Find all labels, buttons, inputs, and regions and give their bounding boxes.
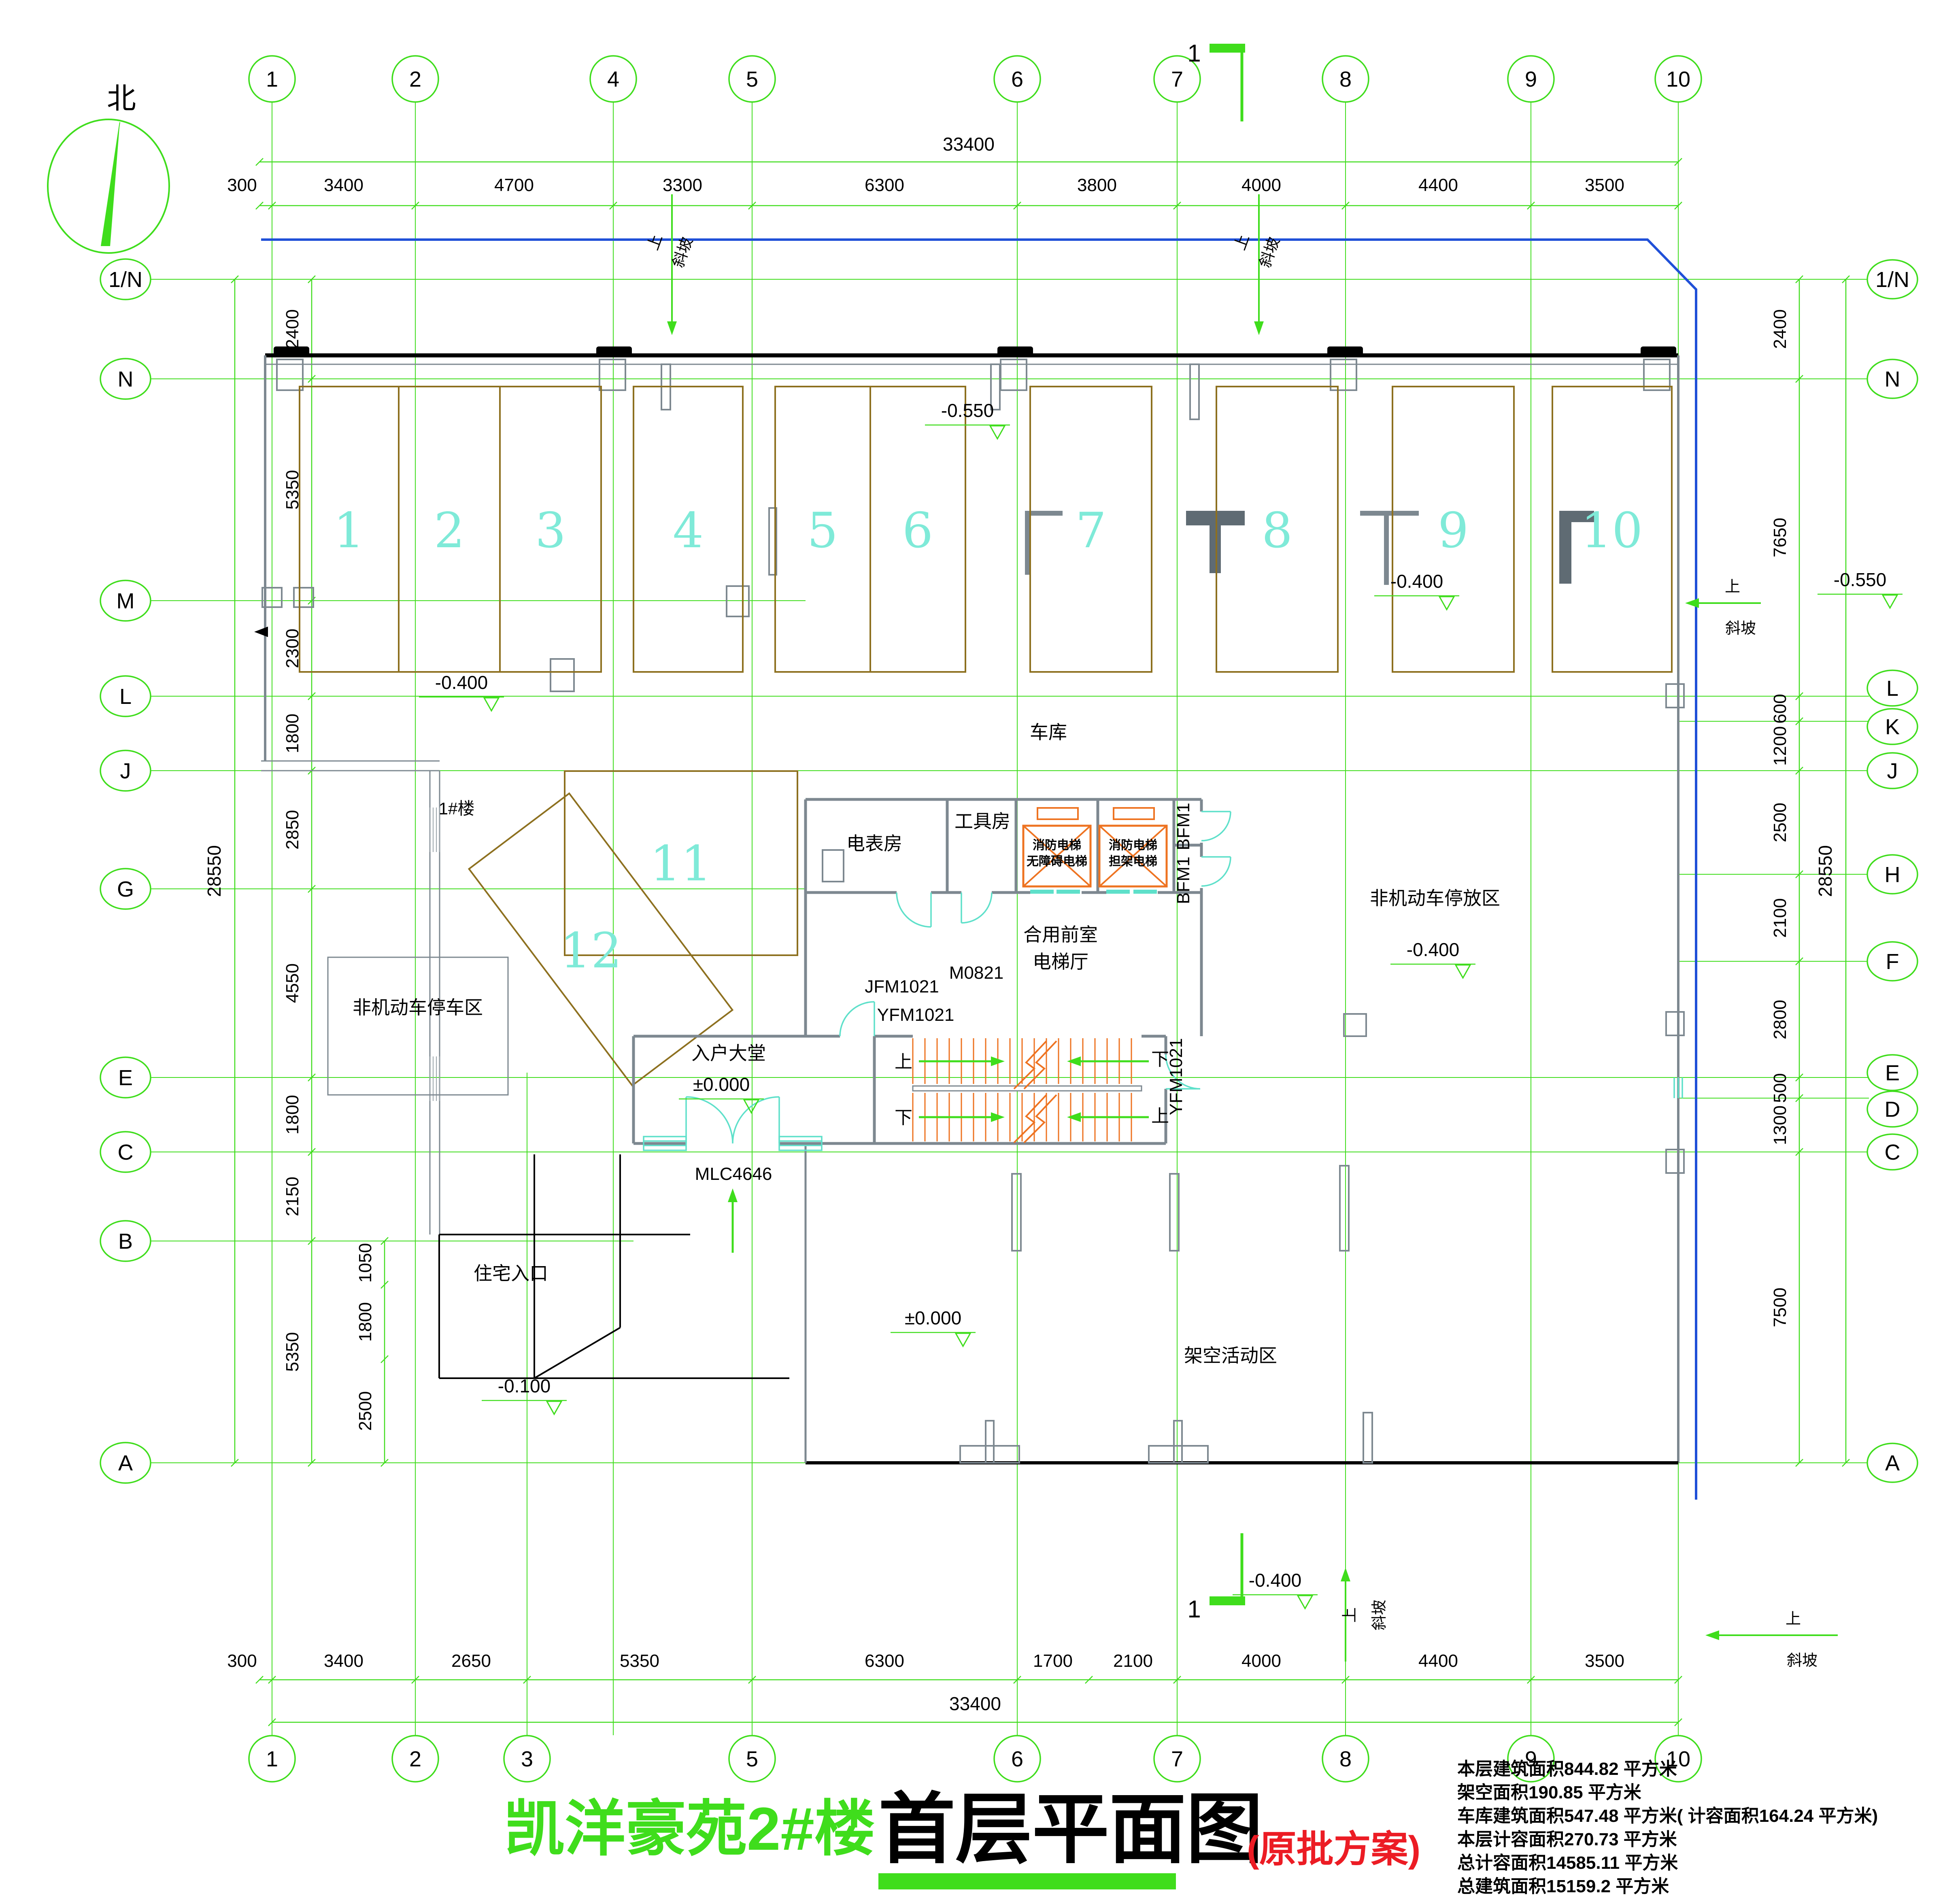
dim-right-2: 600 (1770, 694, 1790, 723)
dim-left-7: 2150 (283, 1177, 302, 1216)
stall-9: 9 (1438, 503, 1469, 559)
elevated-columns (960, 1166, 1372, 1463)
dim-right-4: 2500 (1770, 803, 1790, 842)
dim-left-5: 4550 (283, 963, 302, 1003)
dim-bot-7: 4000 (1241, 1651, 1281, 1671)
section-marks: 1 1 (1187, 40, 1245, 1623)
elev-elevated-zero: ±0.000 (891, 1307, 976, 1346)
stat-line-3: 车库建筑面积547.48 平方米( 计容面积164.24 平方米) (1457, 1806, 1878, 1826)
door-label-bfm1-b: BFM1 (1173, 856, 1193, 904)
bubble-top-1: 1 (266, 67, 278, 91)
label-residence-entrance: 住宅入口 (474, 1263, 548, 1284)
slope-bottom: 上 斜坡 (1341, 1568, 1388, 1662)
elevator-right-line1: 消防电梯 (1109, 839, 1157, 852)
dim-bot-4: 6300 (865, 1651, 904, 1671)
dim-right-0: 2400 (1770, 309, 1790, 349)
elev-nonmotor-n400: -0.400 (1390, 939, 1475, 978)
dim-top-8: 3500 (1585, 175, 1624, 195)
grid-bubbles (100, 56, 1917, 1782)
slope-right-bottom: 上 斜坡 (1705, 1611, 1838, 1669)
label-tool-room: 工具房 (954, 811, 1010, 832)
dim-right-1: 7650 (1770, 518, 1790, 557)
bubble-left-C: C (118, 1140, 134, 1164)
bubble-bot-8: 8 (1339, 1747, 1352, 1771)
bubble-bot-2: 2 (409, 1747, 421, 1771)
dim-bot-1: 3400 (324, 1651, 364, 1671)
bubble-bot-1: 1 (266, 1747, 278, 1771)
site-boundary-line (261, 240, 1696, 1500)
dim-bot-8: 4400 (1418, 1651, 1458, 1671)
stat-line-5: 总计容面积14585.11 平方米 (1457, 1853, 1678, 1873)
bubble-right-H: H (1885, 863, 1900, 887)
bubble-left-E: E (118, 1066, 133, 1090)
floor-plan-canvas: 33400 300 3400 4700 3300 6300 3800 4000 … (0, 0, 1943, 1904)
elev-text: -0.100 (498, 1375, 551, 1396)
elevator-left-line2: 无障碍电梯 (1027, 854, 1087, 868)
door-label-mlc4646: MLC4646 (695, 1164, 772, 1184)
bubble-left-B: B (118, 1229, 133, 1254)
stat-line-6: 总建筑面积15159.2 平方米 (1457, 1876, 1669, 1896)
elev-text: -0.400 (435, 672, 488, 693)
stall-10: 10 (1581, 503, 1643, 559)
grid-bubble-labels: 1 2 4 5 6 7 8 9 10 1 2 3 5 6 7 8 9 10 1/… (108, 67, 1909, 1771)
right-wall-window (1674, 1077, 1682, 1098)
bubble-bot-7: 7 (1171, 1747, 1183, 1771)
bubble-right-C: C (1885, 1140, 1900, 1164)
dim-top-6: 4000 (1241, 175, 1281, 195)
section-number: 1 (1187, 1596, 1201, 1623)
stall-3: 3 (535, 503, 566, 559)
bubble-top-8: 8 (1339, 67, 1352, 91)
elev-text: -0.400 (1407, 939, 1459, 960)
bubble-right-J: J (1887, 759, 1898, 783)
dim-left-sub-1: 1800 (355, 1302, 375, 1342)
stall-1: 1 (334, 503, 364, 559)
dim-top-3: 3300 (663, 175, 702, 195)
slope-up-text: 上 (1725, 578, 1740, 595)
stat-line-1: 本层建筑面积844.82 平方米 (1457, 1759, 1677, 1779)
elev-text: -0.550 (1834, 569, 1886, 590)
slope-up-text: 上 (644, 232, 665, 253)
bubble-right-A: A (1885, 1451, 1900, 1475)
bubble-top-10: 10 (1666, 67, 1690, 91)
dim-top-7: 4400 (1418, 175, 1458, 195)
dim-right-6: 2800 (1770, 1000, 1790, 1039)
slope-ramp-text: 斜坡 (1787, 1652, 1818, 1669)
dim-right-7: 500 (1770, 1073, 1790, 1103)
dim-right-total: 28550 (1815, 845, 1836, 897)
stair-down-label-2: 下 (895, 1108, 912, 1128)
dim-left-8: 5350 (283, 1332, 302, 1372)
dim-top-total: 33400 (943, 134, 995, 155)
stair-up-label-1: 上 (895, 1052, 912, 1072)
dim-left-0: 2400 (283, 309, 302, 349)
elevation-markers: -0.550 -0.550 -0.400 -0.400 -0.400 -0.40… (419, 400, 1903, 1609)
label-nonmotor-left: 非机动车停车区 (353, 997, 483, 1018)
label-front-room: 合用前室 (1023, 924, 1098, 945)
dim-bot-2: 2650 (451, 1651, 491, 1671)
bubble-right-1N: 1/N (1875, 268, 1909, 292)
stair-down-label-1: 下 (1151, 1050, 1169, 1069)
bubble-right-L: L (1886, 676, 1898, 701)
bubble-left-M: M (117, 589, 135, 613)
bubble-top-9: 9 (1525, 67, 1537, 91)
slope-annotations: 上 斜坡 上 斜坡 上 斜坡 上 斜坡 (642, 194, 1838, 1669)
label-building1: 1#楼 (439, 799, 475, 818)
bubble-left-1N: 1/N (108, 268, 142, 292)
dim-right-8: 1300 (1770, 1105, 1790, 1145)
bubble-top-4: 4 (607, 67, 619, 91)
bubble-top-7: 7 (1171, 67, 1183, 91)
label-garage: 车库 (1030, 722, 1067, 743)
elev-left-n400: -0.400 (419, 672, 504, 711)
title-drawing-name: 首层平面图 (878, 1787, 1263, 1872)
title-project: 凯洋豪苑2#楼 (504, 1795, 875, 1863)
elevator-right-line2: 担架电梯 (1109, 855, 1157, 868)
bubble-bot-3: 3 (521, 1747, 533, 1771)
dim-right-5: 2100 (1770, 898, 1790, 938)
elev-text: -0.550 (941, 400, 994, 421)
section-mark-bottom: 1 (1187, 1533, 1245, 1623)
dim-right-9: 7500 (1770, 1288, 1790, 1327)
door-label-m0821: M0821 (949, 963, 1004, 983)
dim-bot-0: 300 (227, 1651, 257, 1671)
dim-left-sub-0: 1050 (355, 1243, 375, 1283)
stall-11: 11 (650, 836, 712, 892)
bubble-left-G: G (117, 877, 134, 901)
dim-top-5: 3800 (1077, 175, 1117, 195)
stall-7: 7 (1076, 503, 1106, 559)
leader-arrow (254, 627, 268, 637)
label-meter-room: 电表房 (846, 833, 902, 854)
dim-left-total: 28550 (204, 845, 225, 897)
dim-top-2: 4700 (494, 175, 534, 195)
bubble-bot-6: 6 (1011, 1747, 1023, 1771)
bubble-left-N: N (118, 367, 134, 391)
stall-8: 8 (1262, 503, 1292, 559)
stall-2: 2 (434, 503, 465, 559)
stat-line-2: 架空面积190.85 平方米 (1457, 1783, 1641, 1802)
bubble-right-D: D (1885, 1097, 1900, 1122)
bubble-right-E: E (1885, 1061, 1900, 1085)
stall-5: 5 (807, 503, 838, 559)
bubble-top-6: 6 (1011, 67, 1023, 91)
dim-left-4: 2850 (283, 810, 302, 850)
elev-n100: -0.100 (482, 1375, 567, 1414)
window-hatch (430, 807, 440, 1101)
title-scheme: (原批方案) (1247, 1829, 1420, 1870)
stall-12: 12 (560, 923, 622, 979)
north-label: 北 (107, 83, 136, 115)
bubble-left-A: A (118, 1451, 133, 1475)
slope-top-1: 上 斜坡 (642, 194, 696, 335)
elev-text: -0.400 (1390, 571, 1443, 592)
dim-bottom-total: 33400 (949, 1693, 1001, 1714)
section-number: 1 (1187, 40, 1201, 67)
stat-line-4: 本层计容面积270.73 平方米 (1457, 1830, 1677, 1849)
bubble-right-N: N (1885, 367, 1900, 391)
slope-ramp-text: 斜坡 (1725, 620, 1756, 637)
elev-text: ±0.000 (693, 1074, 750, 1095)
entrance-arrow (728, 1188, 738, 1253)
dim-left-sub-2: 2500 (355, 1391, 375, 1431)
elevator-left-line1: 消防电梯 (1033, 839, 1081, 852)
elev-text: ±0.000 (905, 1307, 961, 1328)
dim-bot-6: 2100 (1113, 1651, 1153, 1671)
dim-left-3: 1800 (283, 714, 302, 753)
dim-top-0: 300 (227, 175, 257, 195)
stairs: 上 下 下 上 (895, 1038, 1169, 1143)
door-label-bfm1-a: BFM1 (1173, 803, 1193, 850)
slope-top-2: 上 斜坡 (1229, 194, 1283, 335)
dim-bot-9: 3500 (1585, 1651, 1624, 1671)
label-nonmotor-right: 非机动车停放区 (1370, 888, 1500, 909)
stall-4: 4 (673, 503, 704, 559)
elev-text: -0.400 (1249, 1570, 1301, 1591)
title-underline (878, 1873, 1176, 1889)
elev-right-n550: -0.550 (1818, 569, 1903, 608)
dim-top-4: 6300 (865, 175, 904, 195)
door-label-jfm1021: JFM1021 (865, 977, 939, 997)
slope-ramp-text: 斜坡 (1371, 1600, 1388, 1630)
title-block: 凯洋豪苑2#楼 首层平面图 (原批方案) (504, 1787, 1420, 1889)
slope-up-text: 上 (1786, 1611, 1801, 1628)
stall-6: 6 (902, 503, 933, 559)
bubble-left-J: J (120, 759, 131, 783)
dim-bot-3: 5350 (620, 1651, 659, 1671)
elev-top-n550: -0.550 (925, 400, 1010, 439)
slope-up-text: 上 (1341, 1607, 1358, 1623)
north-arrow: 北 (48, 83, 169, 253)
elev-bottom-n400: -0.400 (1233, 1570, 1318, 1609)
label-elevated-area: 架空活动区 (1184, 1345, 1277, 1366)
bubble-bot-5: 5 (746, 1747, 758, 1771)
slope-up-text: 上 (1231, 232, 1252, 253)
dim-left-6: 1800 (283, 1095, 302, 1135)
door-label-yfm1021-b: YFM1021 (1166, 1038, 1186, 1116)
bubble-right-F: F (1886, 950, 1899, 974)
dim-top-1: 3400 (324, 175, 364, 195)
door-label-yfm1021-a: YFM1021 (877, 1005, 954, 1025)
bubble-left-L: L (119, 684, 132, 709)
bubble-right-K: K (1885, 715, 1900, 739)
bubble-top-5: 5 (746, 67, 758, 91)
dim-right-3: 1200 (1770, 726, 1790, 766)
elevators: 消防电梯 无障碍电梯 消防电梯 担架电梯 (1023, 808, 1167, 894)
stair-up-label-2: 上 (1151, 1106, 1169, 1126)
room-labels: 车库 电表房 工具房 合用前室 电梯厅 入户大堂 非机动车停车区 非机动车停放区… (353, 722, 1500, 1366)
label-lobby: 入户大堂 (691, 1043, 766, 1064)
bubble-top-2: 2 (409, 67, 421, 91)
label-lift-hall: 电梯厅 (1033, 951, 1088, 972)
entrance-ramp (534, 1154, 789, 1378)
dim-bot-5: 1700 (1033, 1651, 1073, 1671)
